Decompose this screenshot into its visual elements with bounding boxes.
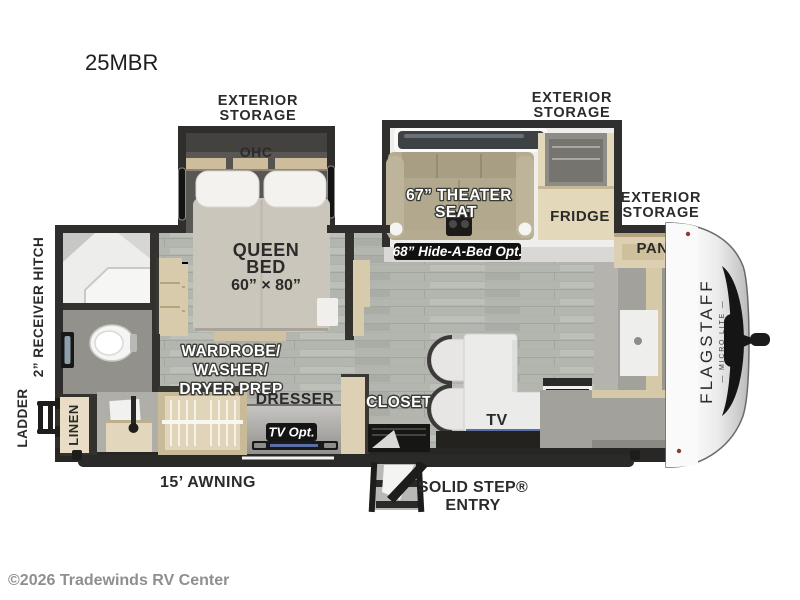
svg-text:CLOSET: CLOSET [366, 394, 432, 411]
svg-text:TV Opt.: TV Opt. [268, 425, 314, 440]
svg-text:©2026 Tradewinds RV Center: ©2026 Tradewinds RV Center [8, 572, 229, 589]
svg-text:OHC: OHC [240, 144, 273, 160]
svg-text:— MICRO LITE —: — MICRO LITE — [719, 299, 726, 382]
svg-text:68” Hide-A-Bed Opt.: 68” Hide-A-Bed Opt. [393, 244, 523, 259]
svg-text:STORAGE: STORAGE [219, 108, 296, 124]
svg-text:25MBR: 25MBR [85, 50, 158, 75]
svg-text:LADDER: LADDER [15, 388, 30, 447]
svg-text:EXTERIOR: EXTERIOR [532, 90, 613, 106]
svg-text:FLAGSTAFF: FLAGSTAFF [697, 278, 716, 404]
svg-text:2” RECEIVER HITCH: 2” RECEIVER HITCH [31, 237, 46, 378]
svg-text:STORAGE: STORAGE [533, 105, 610, 121]
svg-text:15’ AWNING: 15’ AWNING [160, 474, 256, 491]
svg-text:SOLID STEP®: SOLID STEP® [418, 479, 528, 496]
svg-text:SEAT: SEAT [435, 204, 477, 221]
svg-text:DRESSER: DRESSER [256, 391, 334, 408]
svg-text:WARDROBE/: WARDROBE/ [181, 343, 281, 360]
svg-text:EXTERIOR: EXTERIOR [218, 93, 299, 109]
svg-text:ENTRY: ENTRY [445, 497, 500, 514]
svg-text:60” × 80”: 60” × 80” [231, 277, 301, 294]
svg-text:WASHER/: WASHER/ [194, 362, 269, 379]
svg-text:BED: BED [246, 257, 286, 277]
svg-text:STORAGE: STORAGE [622, 205, 699, 221]
svg-text:67” THEATER: 67” THEATER [406, 187, 512, 204]
svg-text:FRIDGE: FRIDGE [550, 208, 610, 225]
svg-text:LINEN: LINEN [66, 404, 81, 446]
svg-text:EXTERIOR: EXTERIOR [621, 190, 702, 206]
svg-text:TV: TV [486, 412, 507, 429]
